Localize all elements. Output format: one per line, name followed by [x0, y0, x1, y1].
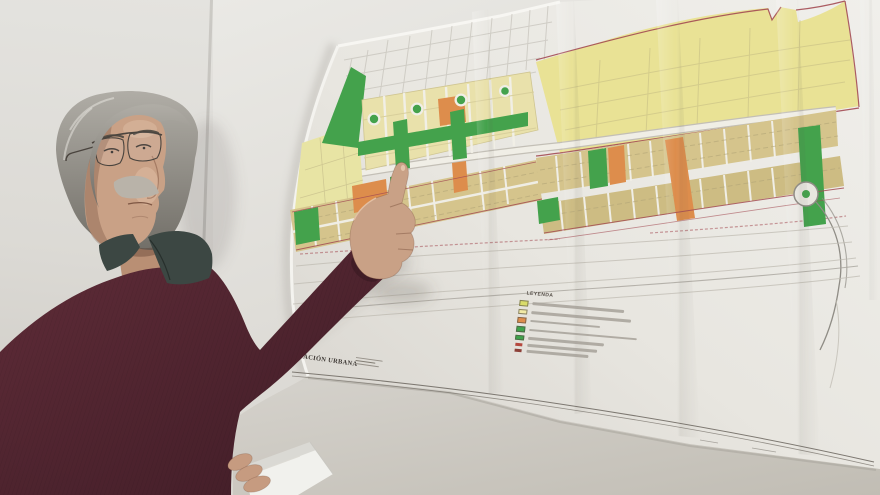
held-paper-group — [225, 442, 333, 495]
pointing-hand — [350, 162, 415, 279]
fingernail — [401, 165, 405, 171]
photo-scene: LEYENDA ORDENACIÓN URBANA — [0, 0, 880, 495]
man-layer — [0, 0, 880, 495]
